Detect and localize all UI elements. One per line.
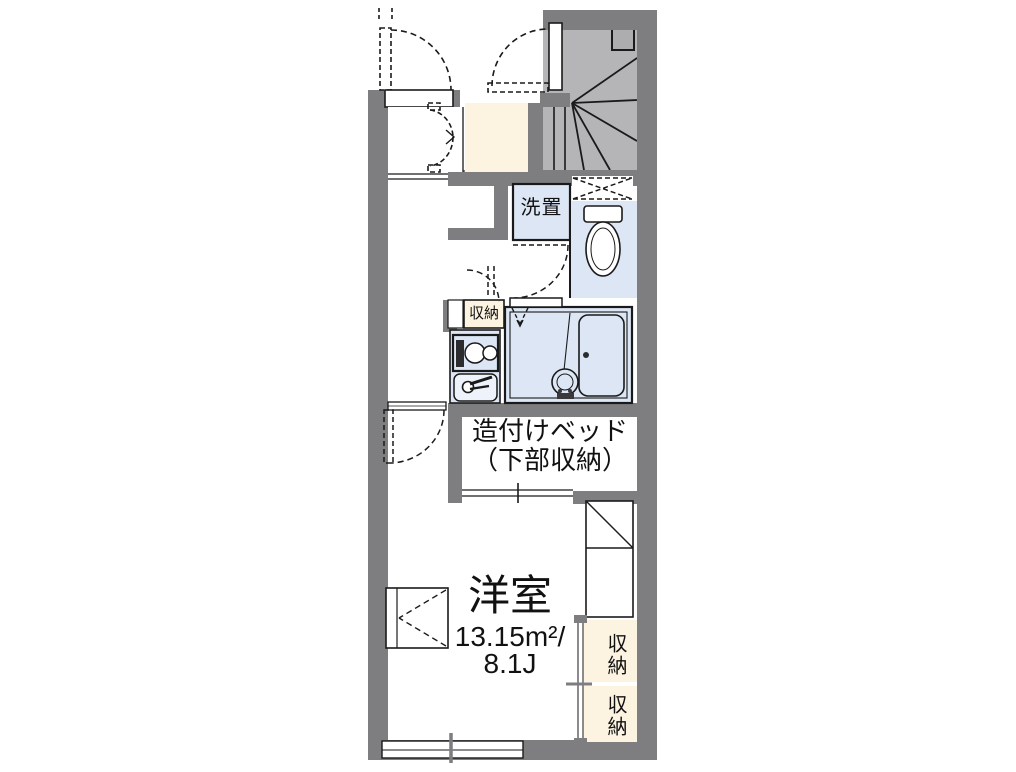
bathtub-drain bbox=[583, 352, 589, 358]
stair-entry-door-slab bbox=[549, 23, 562, 90]
genkan-entry bbox=[465, 103, 528, 172]
kitchen-side-box bbox=[448, 300, 463, 328]
kitchen-sink bbox=[454, 374, 497, 401]
wall-bed-top bbox=[448, 403, 637, 417]
laundry-label: 洗置 bbox=[513, 198, 570, 219]
floor-plan: 洗置 収納 造付けベッド （下部収納） 洋室 13.15m²/ 8.1J 収納 … bbox=[0, 0, 1016, 772]
wall-nook-bottom bbox=[448, 228, 508, 240]
entry-door-slab bbox=[385, 90, 453, 107]
toilet-fixture bbox=[584, 206, 622, 276]
porch-door-leaf-left bbox=[380, 28, 391, 90]
storage-upper-label: 収納 bbox=[595, 628, 625, 682]
built-in-bed-label-line2: （下部収納） bbox=[455, 447, 645, 474]
porch-door-leaf-right bbox=[488, 83, 548, 92]
room-area-sqm-label: 13.15m²/ bbox=[425, 622, 595, 651]
wall-left bbox=[368, 90, 388, 760]
closet-bottom-line bbox=[388, 174, 448, 179]
kitchen-storage-label: 収納 bbox=[464, 306, 504, 322]
porch-door-arc-right bbox=[492, 29, 548, 86]
room-area-tatami-label: 8.1J bbox=[425, 649, 595, 678]
toilet-window-area bbox=[572, 176, 633, 201]
porch-door-arc-left bbox=[391, 30, 451, 90]
bed-front-line bbox=[462, 483, 573, 503]
built-in-bed-label-line1: 造付けベッド bbox=[455, 418, 645, 445]
room-door bbox=[384, 410, 444, 463]
wall-right bbox=[637, 10, 657, 760]
storage-lower-label: 収納 bbox=[595, 692, 625, 740]
room-name-label: 洋室 bbox=[425, 574, 595, 618]
bottom-window bbox=[382, 733, 523, 763]
wall-genkan-stair bbox=[528, 103, 543, 172]
stair-corner-box bbox=[612, 28, 634, 50]
stove bbox=[453, 335, 498, 371]
bath-door-slab bbox=[510, 298, 562, 307]
wall-stair-stub bbox=[540, 93, 570, 107]
washroom-door bbox=[513, 240, 568, 298]
kitchen-storage-door bbox=[467, 266, 499, 302]
porch-doors bbox=[379, 8, 548, 92]
